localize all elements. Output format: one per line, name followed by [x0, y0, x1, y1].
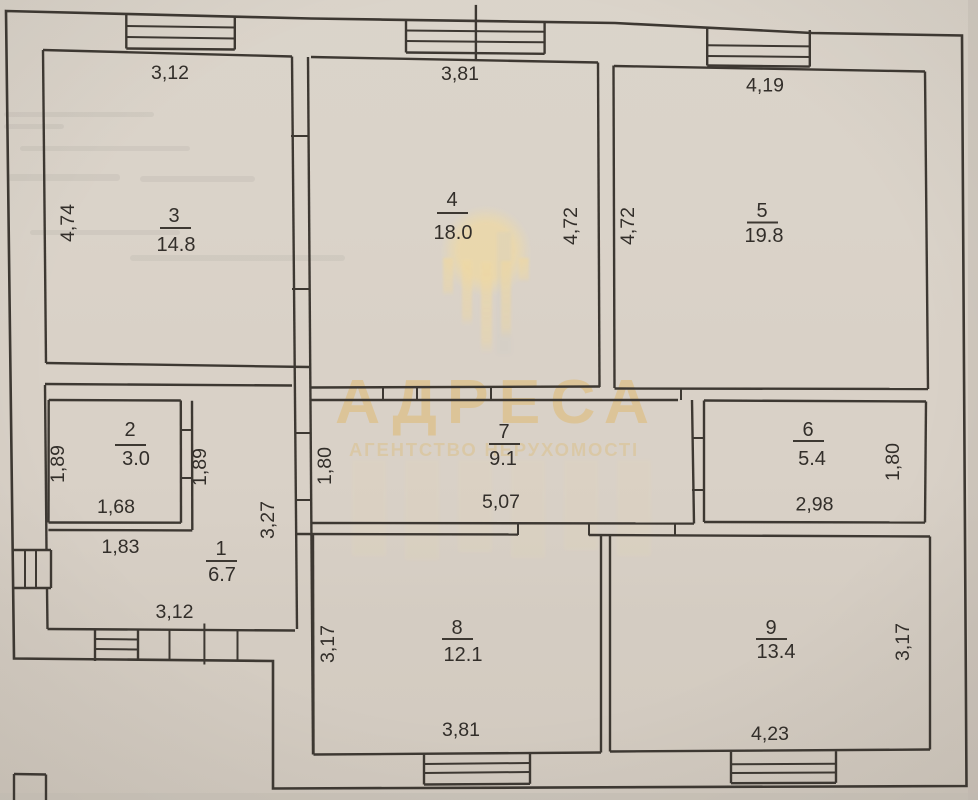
svg-text:1,80: 1,80: [882, 443, 904, 481]
svg-text:1,83: 1,83: [102, 536, 140, 558]
svg-text:6: 6: [802, 419, 813, 441]
svg-text:3,81: 3,81: [441, 63, 479, 85]
svg-text:1,80: 1,80: [314, 447, 336, 485]
svg-text:3,12: 3,12: [151, 62, 189, 84]
svg-text:1,68: 1,68: [97, 496, 135, 518]
svg-text:4,74: 4,74: [57, 204, 79, 242]
svg-text:3,17: 3,17: [317, 625, 339, 663]
svg-text:12.1: 12.1: [444, 644, 483, 666]
svg-text:9: 9: [765, 617, 776, 639]
svg-text:3,12: 3,12: [156, 601, 194, 623]
svg-text:3,27: 3,27: [257, 501, 279, 539]
svg-text:4,23: 4,23: [751, 723, 789, 745]
svg-text:9.1: 9.1: [489, 448, 517, 470]
svg-text:3,81: 3,81: [442, 719, 480, 741]
svg-text:1,89: 1,89: [47, 445, 69, 483]
svg-text:3.0: 3.0: [122, 448, 150, 470]
svg-text:3,17: 3,17: [892, 623, 914, 661]
svg-text:19.8: 19.8: [745, 225, 784, 247]
svg-text:4,72: 4,72: [560, 207, 582, 245]
svg-text:4: 4: [446, 189, 457, 211]
svg-text:7: 7: [498, 421, 509, 443]
svg-text:5.4: 5.4: [798, 448, 826, 470]
svg-text:4,19: 4,19: [746, 75, 784, 97]
svg-text:8: 8: [451, 617, 462, 639]
svg-text:1: 1: [215, 538, 226, 560]
svg-text:2,98: 2,98: [796, 494, 834, 516]
svg-text:18.0: 18.0: [434, 222, 473, 244]
svg-text:5,07: 5,07: [482, 491, 520, 513]
svg-text:14.8: 14.8: [157, 234, 196, 256]
svg-text:5: 5: [756, 200, 767, 222]
svg-text:6.7: 6.7: [208, 564, 236, 586]
svg-text:13.4: 13.4: [757, 641, 796, 663]
svg-text:3: 3: [168, 205, 179, 227]
svg-text:2: 2: [124, 419, 135, 441]
svg-text:1,89: 1,89: [189, 448, 211, 486]
svg-text:АДРЕСА: АДРЕСА: [335, 367, 659, 437]
svg-text:4,72: 4,72: [617, 207, 639, 245]
